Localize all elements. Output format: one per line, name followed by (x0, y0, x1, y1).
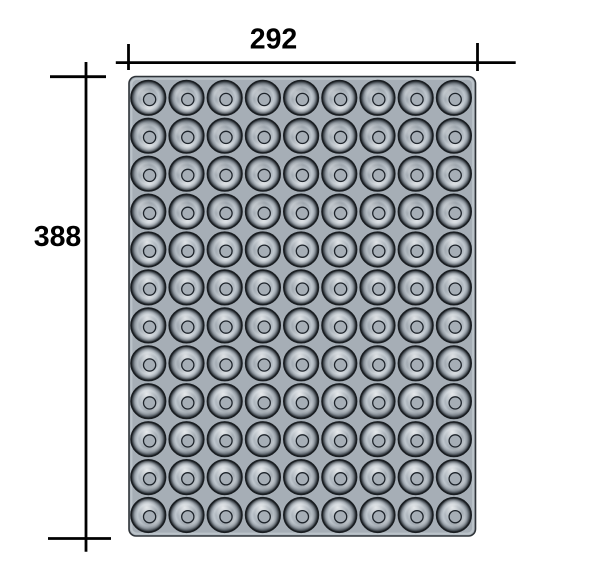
svg-text:292: 292 (250, 24, 298, 56)
svg-text:388: 388 (34, 221, 82, 253)
